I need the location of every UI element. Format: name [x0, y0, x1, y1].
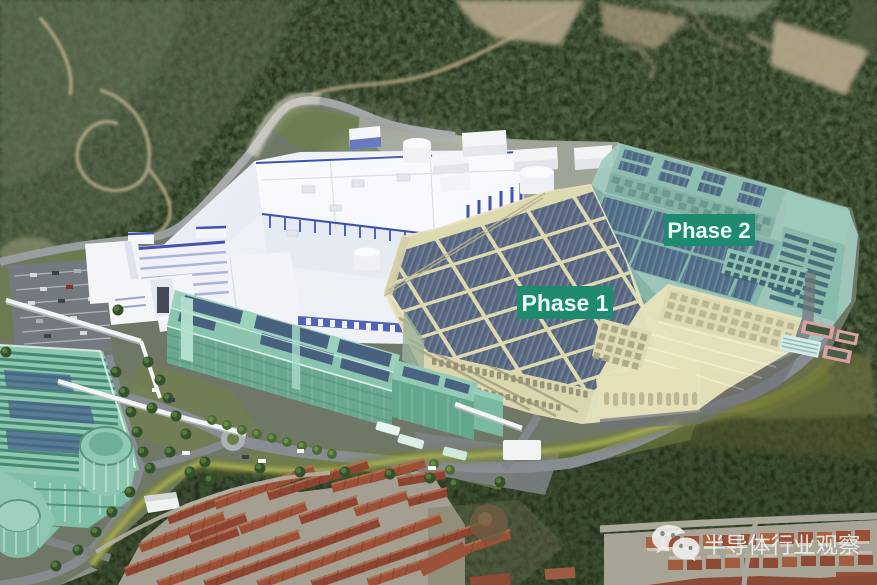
svg-text:Phase 1: Phase 1 [522, 290, 609, 316]
svg-text:Phase 2: Phase 2 [667, 218, 750, 243]
